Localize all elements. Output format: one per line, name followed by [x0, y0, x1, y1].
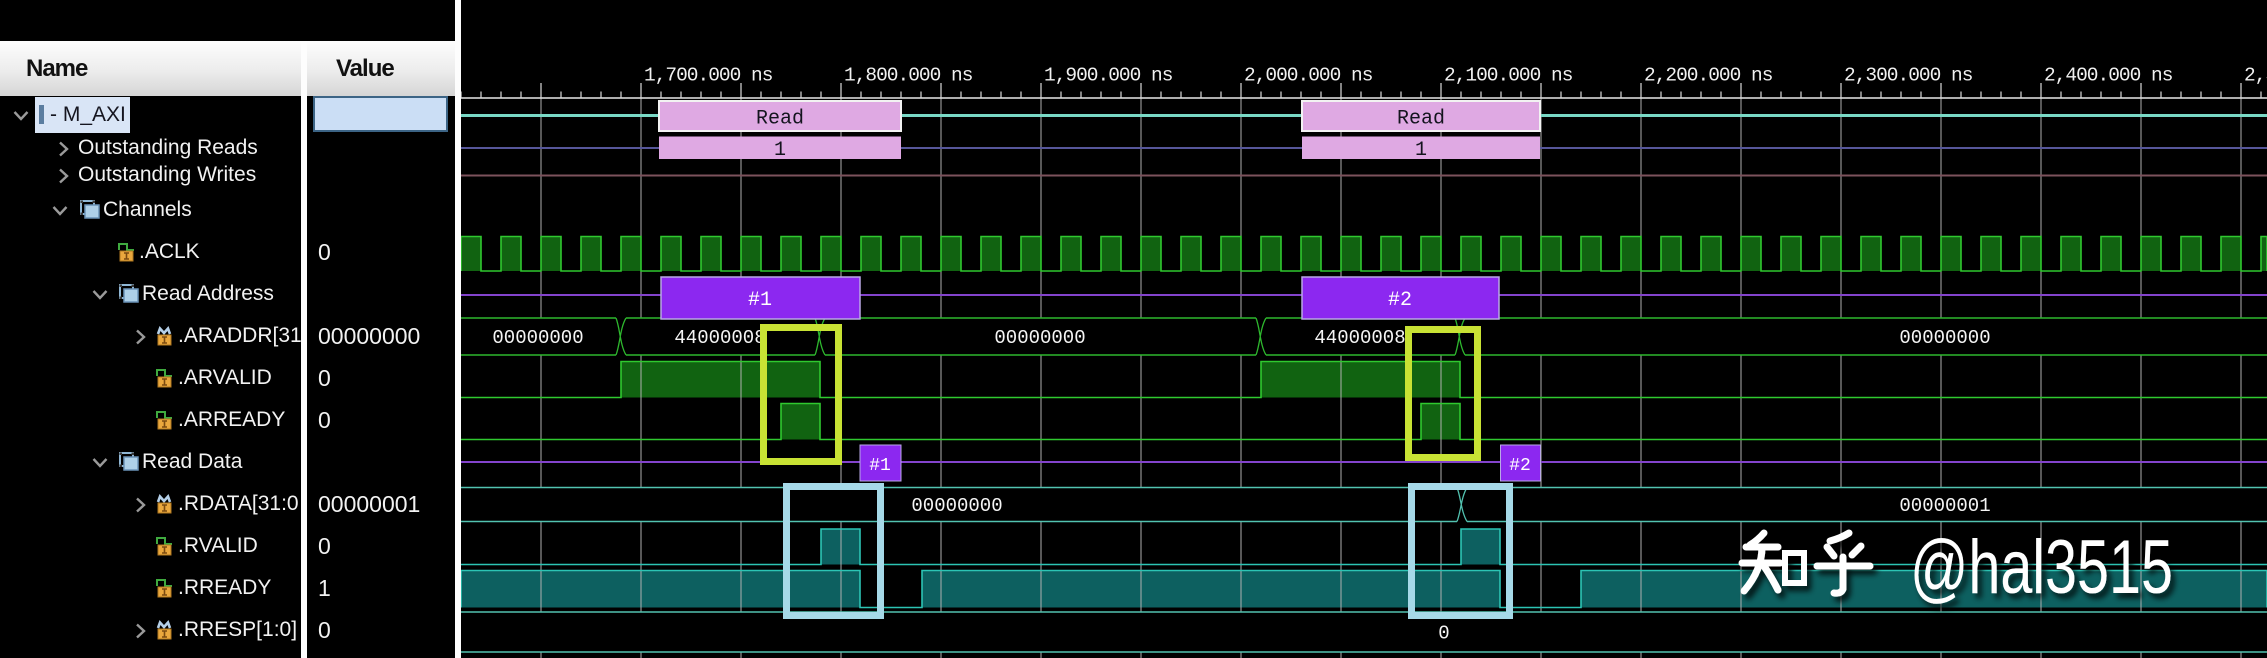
svg-text:@hal3515: @hal3515 [1910, 525, 2173, 610]
svg-text:44000008: 44000008 [1314, 327, 1405, 349]
svg-text:0: 0 [1438, 623, 1449, 645]
svg-text:00000000: 00000000 [492, 327, 583, 349]
svg-text:#1: #1 [869, 456, 891, 476]
svg-text:44000008: 44000008 [674, 327, 765, 349]
svg-text:2,000.000 ns: 2,000.000 ns [1244, 65, 1373, 87]
svg-text:1,800.000 ns: 1,800.000 ns [844, 65, 973, 87]
svg-text:2,100.000 ns: 2,100.000 ns [1444, 65, 1573, 87]
svg-text:00000000: 00000000 [1899, 327, 1990, 349]
svg-text:#2: #2 [1388, 289, 1412, 312]
svg-text:2,300.000 ns: 2,300.000 ns [1844, 65, 1973, 87]
svg-text:00000000: 00000000 [911, 495, 1002, 517]
svg-text:2,200.000 ns: 2,200.000 ns [1644, 65, 1773, 87]
svg-text:#1: #1 [748, 289, 772, 312]
svg-text:1,700.000 ns: 1,700.000 ns [644, 65, 773, 87]
svg-text:#2: #2 [1509, 456, 1531, 476]
svg-text:Read: Read [756, 108, 804, 131]
svg-text:Read: Read [1397, 108, 1445, 131]
svg-text:2,400.000 ns: 2,400.000 ns [2044, 65, 2173, 87]
svg-text:00000001: 00000001 [1899, 495, 1990, 517]
svg-text:00000000: 00000000 [994, 327, 1085, 349]
svg-text:1: 1 [774, 139, 786, 162]
svg-text:1: 1 [1415, 139, 1427, 162]
svg-text:2,500.000 ns: 2,500.000 ns [2244, 65, 2267, 87]
svg-text:1,900.000 ns: 1,900.000 ns [1044, 65, 1173, 87]
